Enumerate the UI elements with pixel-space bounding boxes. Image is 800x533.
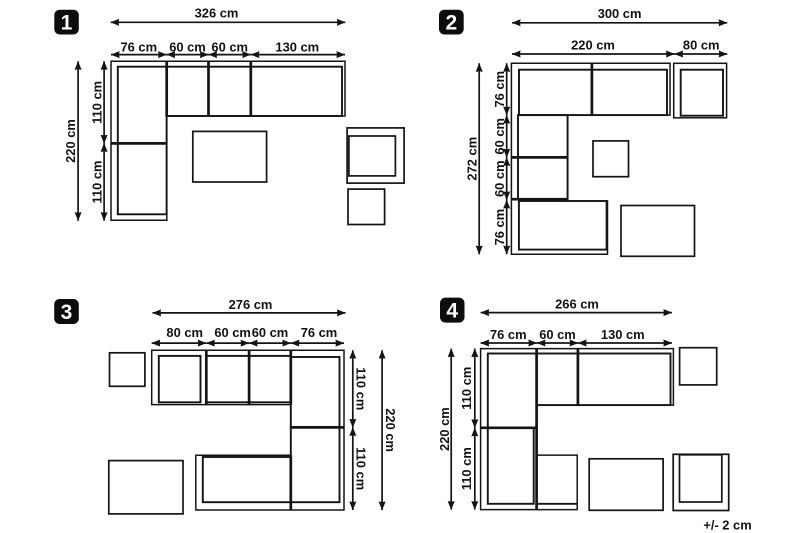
svg-text:220 cm: 220 cm <box>571 37 615 52</box>
svg-text:60 cm: 60 cm <box>492 160 507 197</box>
svg-text:76 cm: 76 cm <box>121 39 158 54</box>
svg-text:220 cm: 220 cm <box>437 407 452 451</box>
svg-text:76 cm: 76 cm <box>301 325 338 340</box>
svg-text:110 cm: 110 cm <box>459 367 474 410</box>
svg-text:1: 1 <box>61 12 73 35</box>
svg-text:110 cm: 110 cm <box>459 447 474 490</box>
svg-text:110 cm: 110 cm <box>354 367 369 410</box>
svg-text:272 cm: 272 cm <box>464 137 479 181</box>
svg-text:130 cm: 130 cm <box>275 39 319 54</box>
svg-text:2: 2 <box>445 12 457 35</box>
svg-text:76 cm: 76 cm <box>490 327 527 342</box>
svg-text:110 cm: 110 cm <box>354 447 369 490</box>
svg-text:76 cm: 76 cm <box>492 71 507 108</box>
svg-text:276 cm: 276 cm <box>229 297 273 312</box>
svg-text:130 cm: 130 cm <box>601 327 645 342</box>
svg-text:+/- 2 cm: +/- 2 cm <box>703 518 751 533</box>
svg-text:300 cm: 300 cm <box>598 6 642 21</box>
svg-text:76 cm: 76 cm <box>492 209 507 246</box>
svg-text:80 cm: 80 cm <box>166 325 203 340</box>
svg-text:220 cm: 220 cm <box>383 408 398 452</box>
svg-text:4: 4 <box>446 300 458 323</box>
svg-text:80 cm: 80 cm <box>683 37 720 52</box>
svg-text:326 cm: 326 cm <box>195 6 239 21</box>
svg-text:60 cm: 60 cm <box>169 39 206 54</box>
svg-text:110 cm: 110 cm <box>89 81 104 124</box>
svg-text:60 cm: 60 cm <box>214 325 251 340</box>
svg-text:60 cm: 60 cm <box>211 39 248 54</box>
svg-text:60 cm: 60 cm <box>492 118 507 155</box>
svg-text:60 cm: 60 cm <box>539 327 576 342</box>
svg-text:266 cm: 266 cm <box>555 296 599 311</box>
svg-text:3: 3 <box>61 301 73 324</box>
svg-text:220 cm: 220 cm <box>63 119 78 163</box>
svg-text:110 cm: 110 cm <box>89 160 104 203</box>
svg-text:60 cm: 60 cm <box>252 325 289 340</box>
